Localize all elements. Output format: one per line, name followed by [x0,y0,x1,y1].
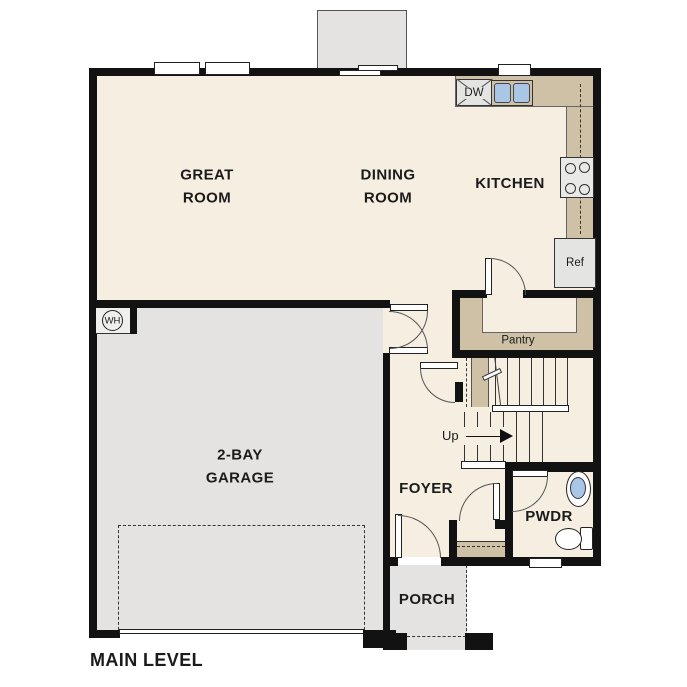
porch-label: PORCH [399,589,455,612]
up-arrow-group: Up [436,427,516,445]
powder-label: PWDR [525,506,572,529]
wall-pantry-bottom [452,350,601,358]
stair-bottom-nosing [461,461,506,469]
wall-pantry-top-right [523,290,601,298]
stove [560,157,594,198]
garage-label: 2-BAY GARAGE [185,445,295,490]
powder-window [529,558,562,568]
kitchen-label: KITCHEN [475,173,544,196]
wall-garage-right-upper [383,300,390,308]
stove-burner [565,183,576,194]
wall-porch-block-right [465,633,493,650]
great-room-label: GREAT ROOM [157,165,257,210]
up-arrow-head [500,429,513,443]
garage-door-clearance [118,525,365,630]
refrigerator-label: Ref [566,257,584,269]
wall-right [593,68,601,566]
wall-closet-top-stub [495,520,513,529]
dining-room-label: DINING ROOM [338,165,438,210]
garage-door [119,629,364,634]
wall-garage-top [89,300,390,308]
dishwasher-label: DW [463,87,484,99]
wall-water-heater-right [130,308,137,334]
wall-left [89,68,97,638]
wall-stair-left-stub [455,382,463,402]
kitchen-sink-basin-right [513,83,530,103]
wall-pantry-left [452,290,460,358]
porch-edge-dashed [466,565,467,636]
porch-edge-dashed-bottom [407,636,466,637]
toilet-bowl [555,528,582,550]
great-room-window-2 [205,62,250,75]
pantry-label: Pantry [501,332,534,349]
water-heater-label: WH [105,315,121,326]
hall-door [390,304,428,311]
powder-sink [566,471,591,507]
up-arrow-line [466,436,500,437]
stove-burner [579,184,590,195]
stair-upper-treads [495,358,568,407]
kitchen-sink-window [498,64,531,76]
stair-landing-edge [492,405,569,412]
sliding-door-panel-right [358,65,398,71]
wall-garage-right [383,353,390,650]
stair-dashed-line [466,358,467,407]
water-heater: WH [102,310,123,331]
closet-rod-dashed [457,546,505,547]
kitchen-sink-basin-left [494,83,511,103]
closet-shelf [457,541,505,557]
dishwasher: DW [456,79,492,106]
stove-burner [565,163,576,174]
wall-closet-left [449,520,457,566]
wall-front-left [383,557,398,566]
floor-plan: Up [0,0,687,687]
stair-half-wall [471,358,489,407]
rear-patio [317,10,407,69]
plan-title: MAIN LEVEL [90,650,203,671]
pantry-floor [482,298,577,333]
powder-sink-basin [570,477,586,499]
foyer-label: FOYER [399,478,453,501]
wall-garage-bottom-left [89,630,120,638]
water-heater-nook: WH [96,308,130,334]
refrigerator: Ref [554,238,596,288]
great-room-window-1 [154,62,200,75]
up-label: Up [442,428,459,443]
stove-burner [579,162,590,173]
wall-porch-block-left [383,633,407,650]
